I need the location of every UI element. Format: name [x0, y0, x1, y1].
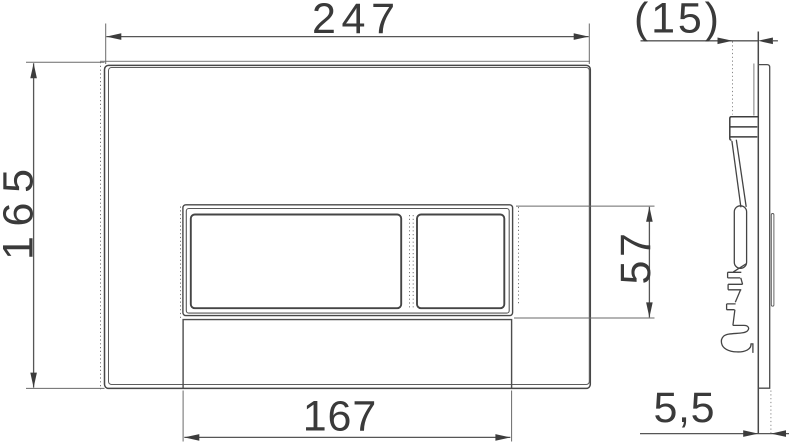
svg-text:57: 57 [612, 233, 660, 285]
svg-text:5,5: 5,5 [654, 384, 715, 432]
svg-text:167: 167 [303, 392, 377, 440]
svg-text:(15): (15) [634, 0, 719, 42]
svg-text:247: 247 [312, 0, 395, 43]
svg-text:165: 165 [0, 169, 43, 260]
